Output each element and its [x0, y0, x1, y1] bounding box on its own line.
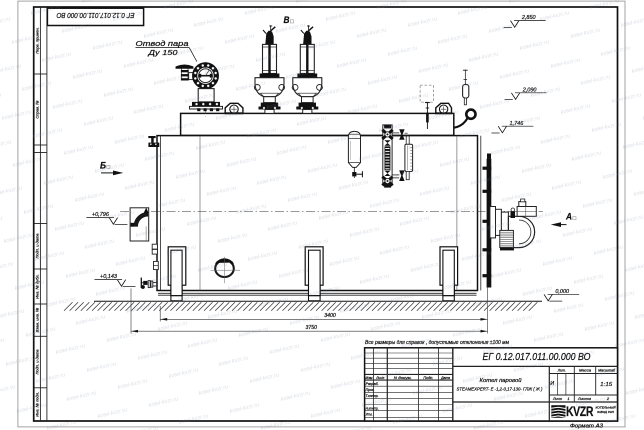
svg-text:Справ. №: Справ. №	[35, 100, 40, 119]
svg-text:Подп.: Подп.	[423, 376, 433, 380]
svg-text:3400: 3400	[324, 313, 336, 319]
svg-text:0,000: 0,000	[555, 289, 570, 295]
svg-text:2,850: 2,850	[521, 15, 537, 21]
svg-text:Разраб.: Разраб.	[366, 382, 379, 386]
svg-text:Изм: Изм	[366, 376, 373, 380]
svg-text:1: 1	[567, 396, 569, 401]
svg-text:А: А	[565, 212, 572, 223]
svg-text:Утв.: Утв.	[366, 413, 373, 417]
svg-text:STEAMEXPERT- Е -1,2-0,17-130-: STEAMEXPERT- Е -1,2-0,17-130- ГЛЖ ( Ж )	[457, 387, 543, 393]
svg-text:Дата: Дата	[440, 376, 450, 380]
svg-text:Все размеры для справок , допу: Все размеры для справок , допустимые отк…	[365, 340, 509, 346]
svg-text:+0,143: +0,143	[100, 274, 118, 280]
svg-text:Лист: Лист	[552, 396, 562, 401]
svg-text:1:15: 1:15	[600, 382, 613, 388]
svg-text:Т.контр.: Т.контр.	[366, 394, 379, 398]
svg-text:КОТЕЛЬНЫЙ: КОТЕЛЬНЫЙ	[596, 406, 617, 410]
svg-text:Подп. и дата: Подп. и дата	[35, 349, 40, 375]
svg-text:Масса: Масса	[579, 368, 592, 373]
svg-text:Подп. и дата: Подп. и дата	[35, 233, 40, 259]
svg-text:Лит.: Лит.	[557, 368, 566, 373]
svg-text:3750: 3750	[306, 325, 318, 331]
svg-text:В: В	[284, 15, 290, 26]
svg-text:ЗАВОД РЭП: ЗАВОД РЭП	[597, 410, 615, 414]
svg-text:Пров.: Пров.	[366, 388, 375, 392]
svg-text:Взам. инв. №: Взам. инв. №	[35, 307, 40, 332]
svg-text:Отвод пара: Отвод пара	[136, 39, 189, 48]
